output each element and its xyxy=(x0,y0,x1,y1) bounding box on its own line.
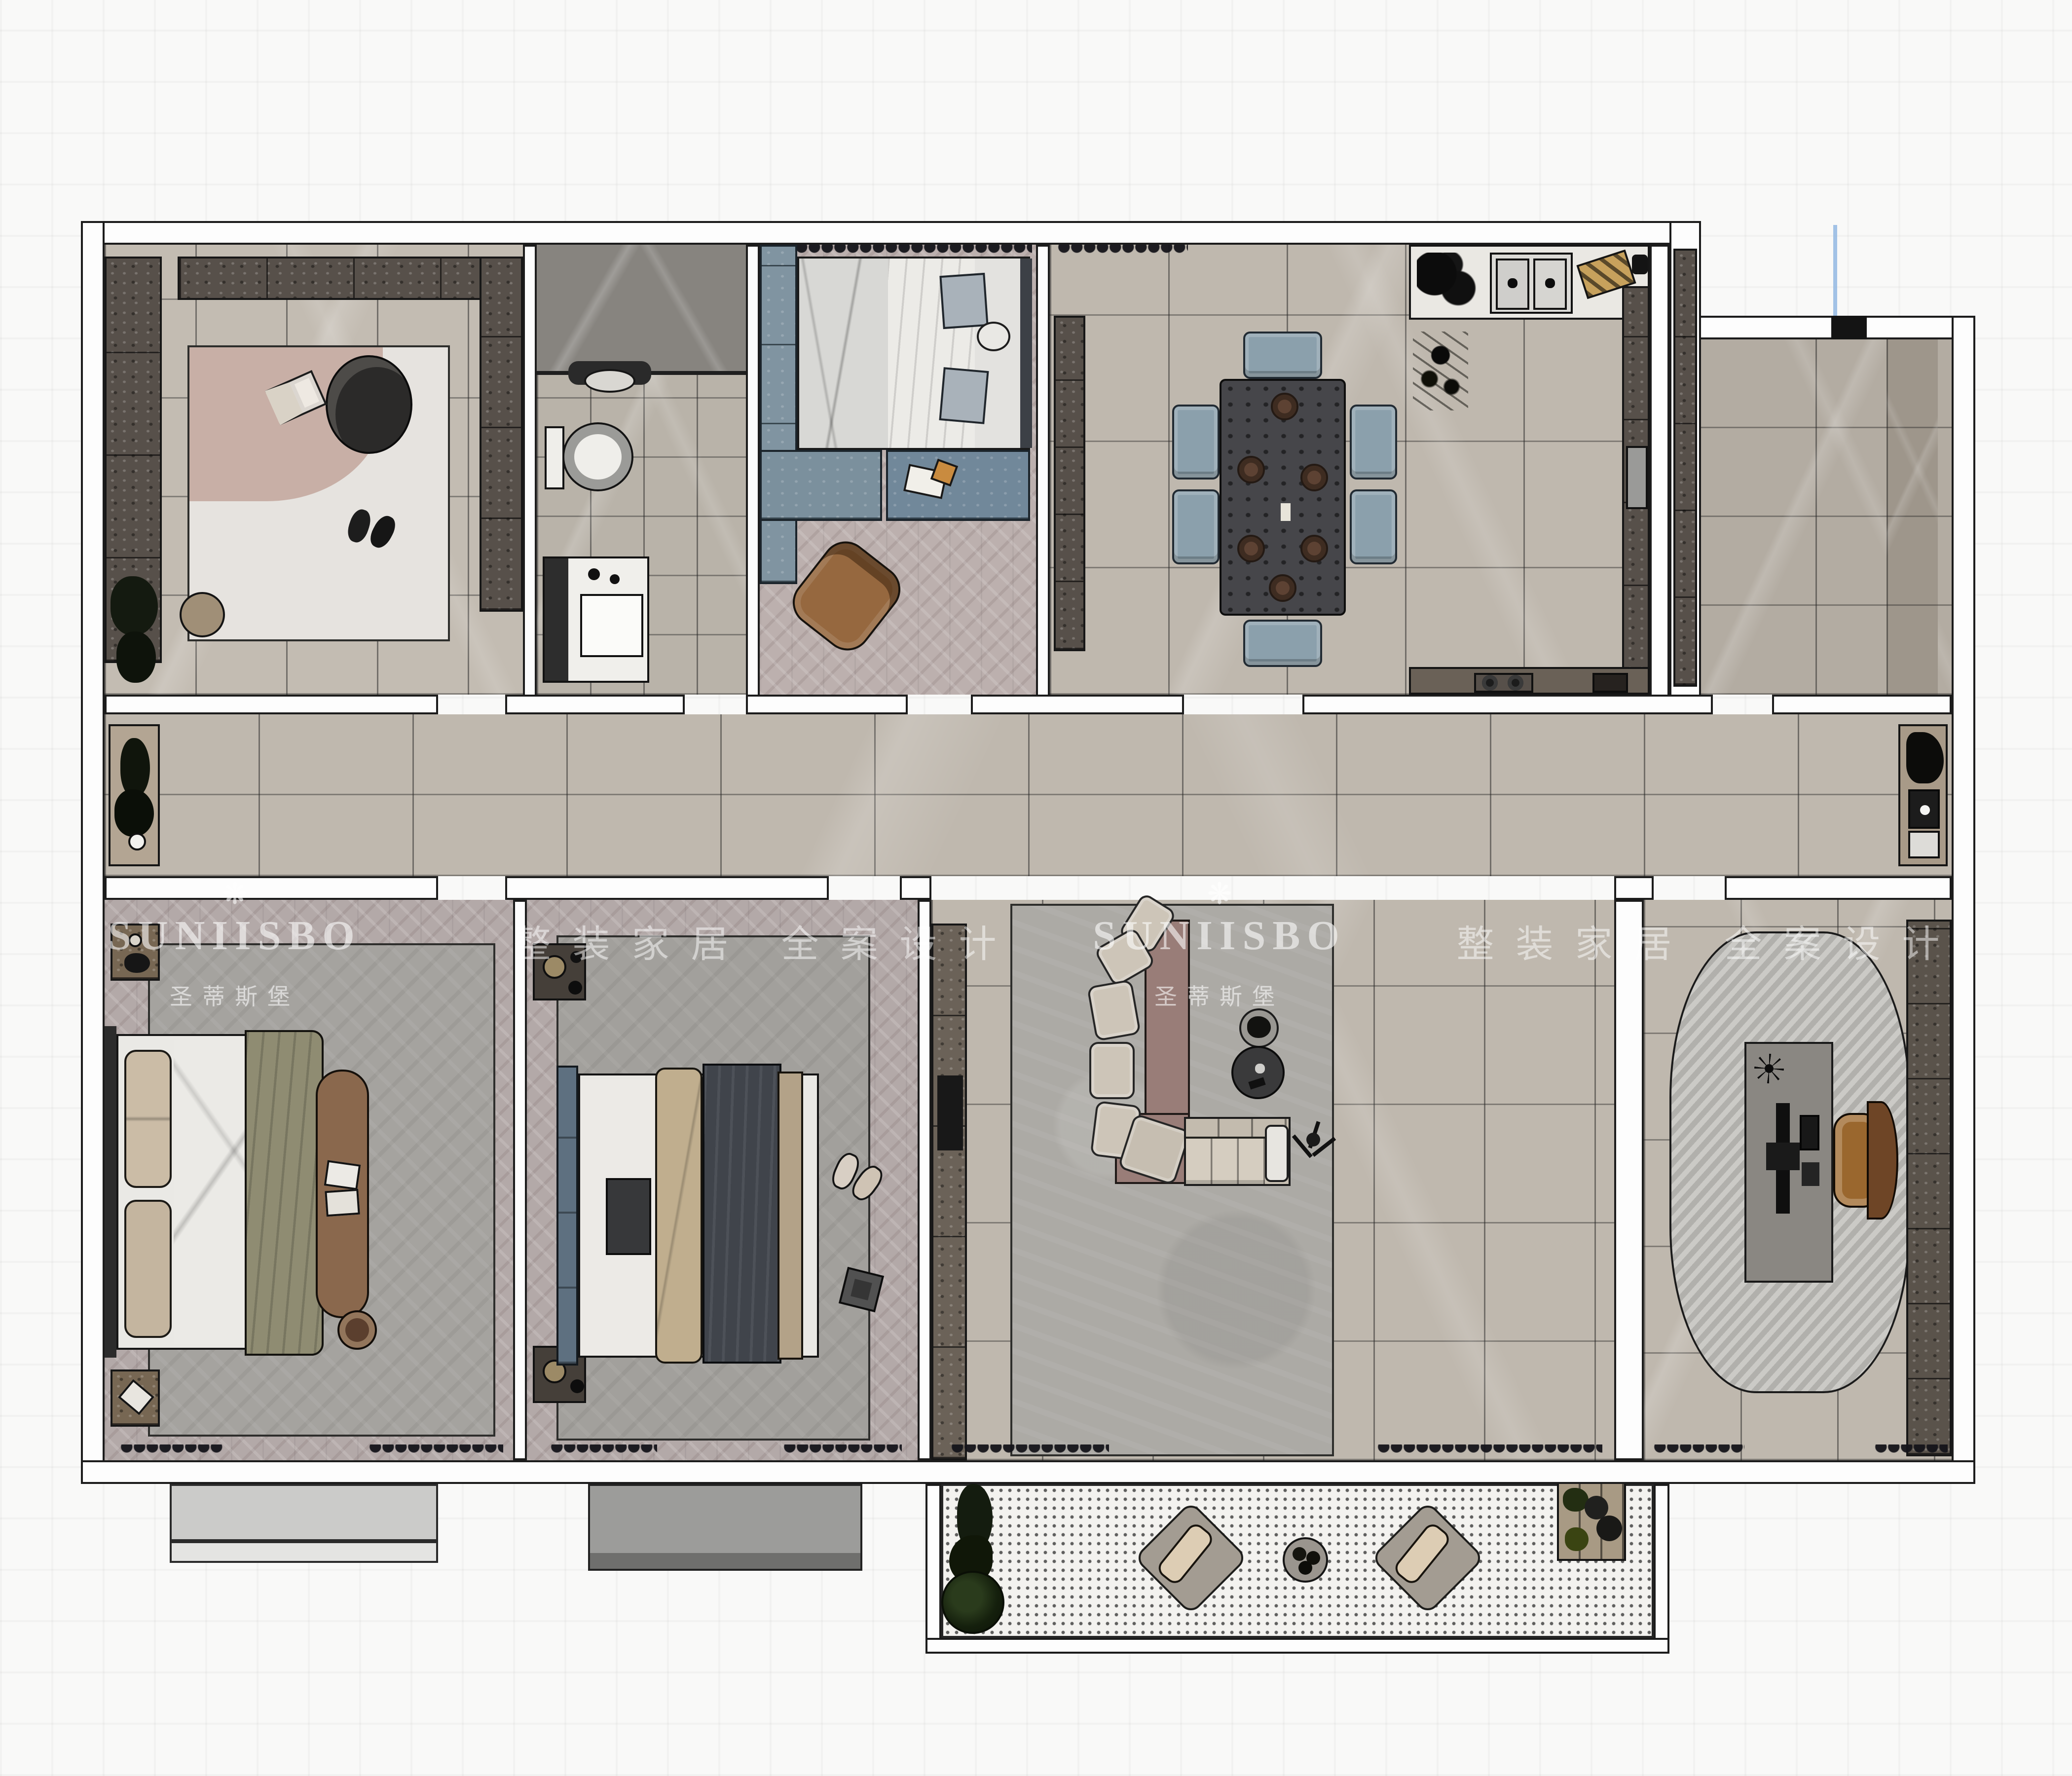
study-desk xyxy=(1744,1042,1833,1283)
coffee-table-large xyxy=(1231,1046,1285,1099)
built-in-oven xyxy=(1626,446,1648,509)
room-second-bedroom xyxy=(527,900,918,1460)
washer-side-panel xyxy=(545,558,568,681)
outer-wall-top-balcony xyxy=(1673,316,1975,339)
second-curtain-right xyxy=(783,1444,902,1458)
hall-bottom-wall-4 xyxy=(1614,876,1654,900)
wall-bath-bed3 xyxy=(746,245,760,714)
shower-slab xyxy=(537,245,746,375)
nightstand-book xyxy=(118,1379,154,1415)
counter-sink-dark xyxy=(1592,673,1628,693)
outer-wall-left xyxy=(81,221,105,1484)
sofa-seats xyxy=(1186,1139,1265,1184)
corner-plant xyxy=(111,576,158,635)
table-remote xyxy=(1248,1077,1265,1089)
dispenser-base xyxy=(1908,831,1940,858)
hob-burner-2 xyxy=(1508,675,1523,691)
plate xyxy=(1237,456,1265,483)
kitchen-tall-cabinets xyxy=(1622,286,1650,671)
hall-top-wall-5 xyxy=(1302,695,1713,714)
hallway-plant-right xyxy=(1906,732,1944,783)
bed-small-pillow xyxy=(939,273,988,329)
master-pillow-2 xyxy=(124,1200,172,1338)
hallway-mat-dish xyxy=(128,833,146,851)
magazine-2 xyxy=(325,1189,360,1217)
outer-wall-top xyxy=(81,221,1697,245)
wall-bed1-bed2 xyxy=(513,900,527,1460)
nightstand-lamp xyxy=(128,933,142,947)
living-curtain-left xyxy=(951,1444,1109,1458)
lamp-dot-2 xyxy=(568,981,582,995)
desk-plant-star xyxy=(1754,1054,1784,1083)
master-pillow-1 xyxy=(124,1050,172,1188)
table-runner-item xyxy=(1281,503,1291,521)
counter-item-dark xyxy=(1632,255,1648,274)
bay-window-second xyxy=(588,1484,862,1571)
desk-keyboard xyxy=(1800,1115,1819,1150)
top-balcony-door-mark xyxy=(1831,316,1867,339)
nightstand-decor xyxy=(124,953,150,973)
wardrobe-right xyxy=(480,257,523,612)
hall-bottom-wall-3 xyxy=(900,876,931,900)
hallway-right-niche xyxy=(1898,724,1948,866)
plate xyxy=(1300,464,1328,491)
nightstand-top xyxy=(111,924,160,981)
bed-small-round-pillow xyxy=(977,322,1010,351)
wall-bed3-dining xyxy=(1036,245,1050,714)
hob-burner-1 xyxy=(1482,675,1498,691)
low-cabinet-left xyxy=(760,450,882,521)
lamp-dot-3 xyxy=(570,1379,584,1393)
master-bed xyxy=(116,1034,314,1350)
hallway-plant-left xyxy=(120,738,150,797)
outer-wall-right xyxy=(1952,316,1975,1484)
bed-small-pillow-2 xyxy=(939,367,989,424)
second-runner-tan xyxy=(777,1072,803,1360)
kitchen-pots xyxy=(1417,253,1476,312)
bed-small-foot-section xyxy=(799,259,888,448)
round-pouf xyxy=(180,592,225,637)
plate xyxy=(1237,535,1265,562)
top-balcony-dark-strip xyxy=(1887,339,1938,695)
washing-machine xyxy=(543,556,649,683)
toilet-tank xyxy=(545,426,564,489)
washer-door xyxy=(580,594,643,657)
sofa-arm-cushion xyxy=(1265,1125,1289,1182)
plate xyxy=(1271,393,1298,420)
desk-monitor-base xyxy=(1766,1143,1800,1170)
hall-top-wall-2 xyxy=(505,695,685,714)
magazine-1 xyxy=(324,1160,361,1190)
lamp-head xyxy=(1306,1133,1320,1147)
outer-wall-bottom xyxy=(81,1460,1975,1484)
second-curtain-left xyxy=(551,1444,657,1458)
master-sheet xyxy=(174,1040,249,1344)
corner-plant-2 xyxy=(116,631,156,683)
hall-bottom-wall-1 xyxy=(105,876,438,900)
second-bed xyxy=(578,1073,819,1358)
living-curtain-right xyxy=(1377,1444,1602,1458)
side-pot xyxy=(337,1310,377,1350)
hall-top-wall-1 xyxy=(105,695,438,714)
balcony-bush xyxy=(941,1571,1004,1634)
dining-chair-left-2 xyxy=(1172,489,1220,564)
hallway-entry-mat xyxy=(109,724,160,866)
bottom-balcony xyxy=(941,1484,1654,1638)
master-curtain-right xyxy=(369,1444,503,1458)
sofa-cushion-3 xyxy=(1087,979,1141,1041)
master-curtain-left xyxy=(120,1444,223,1458)
bed-small xyxy=(797,257,1030,450)
hall-top-wall-6 xyxy=(1772,695,1952,714)
dining-chair-left-1 xyxy=(1172,405,1220,480)
room-study xyxy=(1644,900,1952,1460)
sideboard xyxy=(1054,316,1085,651)
floor-lamp-tripod xyxy=(1293,1121,1336,1164)
lamp-dot xyxy=(570,951,582,963)
wardrobe-blue xyxy=(760,245,797,584)
room-dining-kitchen xyxy=(1050,245,1650,695)
lounge-chair-2 xyxy=(1370,1501,1485,1615)
washer-knob-2 xyxy=(610,574,620,584)
sofa-bottom xyxy=(1184,1117,1291,1186)
balcony-wall-left xyxy=(925,1484,941,1654)
lounge-chair-1 xyxy=(1134,1501,1248,1615)
balcony-wall-right xyxy=(1654,1484,1669,1654)
washer-knob xyxy=(588,568,600,580)
study-curtain-right xyxy=(1875,1444,1948,1458)
wall-cloak-bath xyxy=(523,245,537,714)
dining-table xyxy=(1220,379,1346,616)
dining-chair-top xyxy=(1243,332,1322,379)
room-master-bedroom xyxy=(105,900,513,1460)
second-pillowband xyxy=(655,1068,703,1364)
drain-left xyxy=(1508,278,1517,287)
master-blanket xyxy=(245,1030,324,1356)
desk-item xyxy=(1802,1162,1819,1186)
bed-small-headboard xyxy=(1020,259,1032,448)
bookcase xyxy=(1906,920,1952,1456)
tv-cabinet xyxy=(931,924,967,1460)
hallway-plant-left-2 xyxy=(114,789,154,837)
room-cloakroom xyxy=(105,245,523,695)
table-plant xyxy=(1247,1016,1271,1038)
balcony-planter xyxy=(1557,1482,1626,1561)
toilet-bowl xyxy=(562,422,633,491)
wall-bed2-living xyxy=(918,900,931,1460)
dining-chair-right-2 xyxy=(1350,489,1397,564)
plate xyxy=(1269,574,1296,602)
folded-item xyxy=(606,1178,651,1255)
balcony-wall-bottom xyxy=(925,1638,1669,1654)
dining-curtain-left xyxy=(1058,245,1188,259)
chair-back xyxy=(1867,1101,1898,1220)
floor-plan-canvas: ❋ SUNIISBO 圣蒂斯堡 整装家居 全案设计 ❋ SUNIISBO 圣蒂斯… xyxy=(0,0,2072,1776)
tub-chair xyxy=(783,532,910,660)
sink-bowl xyxy=(584,369,635,393)
water-dispenser xyxy=(1908,789,1940,829)
wall-kitchen-right xyxy=(1650,245,1669,714)
hall-bottom-wall-2 xyxy=(505,876,829,900)
hall-top-wall-3 xyxy=(746,695,908,714)
tv xyxy=(937,1075,963,1150)
second-headboard xyxy=(556,1066,578,1366)
wardrobe-top xyxy=(178,257,523,300)
hall-top-wall-4 xyxy=(971,695,1184,714)
double-sink xyxy=(1490,253,1573,314)
dispenser-dot xyxy=(1920,805,1930,815)
plate xyxy=(1300,535,1328,562)
hall-bottom-wall-5 xyxy=(1725,876,1952,900)
bench-chaise xyxy=(316,1070,369,1318)
kitchen-counter-top xyxy=(1409,245,1650,320)
bay-window-master xyxy=(170,1484,438,1563)
room-living xyxy=(931,900,1614,1460)
lounge-chair-2-cushion xyxy=(1392,1520,1453,1587)
hallway xyxy=(105,714,1952,876)
pier-cabinet xyxy=(1673,249,1697,687)
dining-chair-right-1 xyxy=(1350,405,1397,480)
dining-chair-bottom xyxy=(1243,620,1322,667)
study-curtain-left xyxy=(1654,1444,1744,1458)
master-headboard xyxy=(105,1026,116,1358)
coffee-table-small xyxy=(1239,1008,1279,1048)
nightstand-top-2 xyxy=(533,943,586,1000)
table-cup xyxy=(1255,1064,1264,1073)
kitchen-plant xyxy=(1413,332,1468,410)
nightstand-bottom xyxy=(111,1369,160,1427)
drain-right xyxy=(1545,278,1554,287)
bean-bag-chair xyxy=(326,355,412,454)
office-chair xyxy=(1833,1101,1900,1220)
sofa-cushion-4 xyxy=(1089,1042,1135,1099)
lamp-round xyxy=(543,955,566,979)
balcony-side-table xyxy=(1283,1537,1328,1583)
lounge-chair-1-cushion xyxy=(1155,1520,1216,1587)
wall-living-study xyxy=(1614,900,1644,1460)
room-small-bedroom xyxy=(760,245,1036,695)
second-blanket-navy xyxy=(703,1064,781,1364)
kitchen-counter-bottom xyxy=(1409,667,1650,695)
room-bathroom xyxy=(537,245,746,695)
